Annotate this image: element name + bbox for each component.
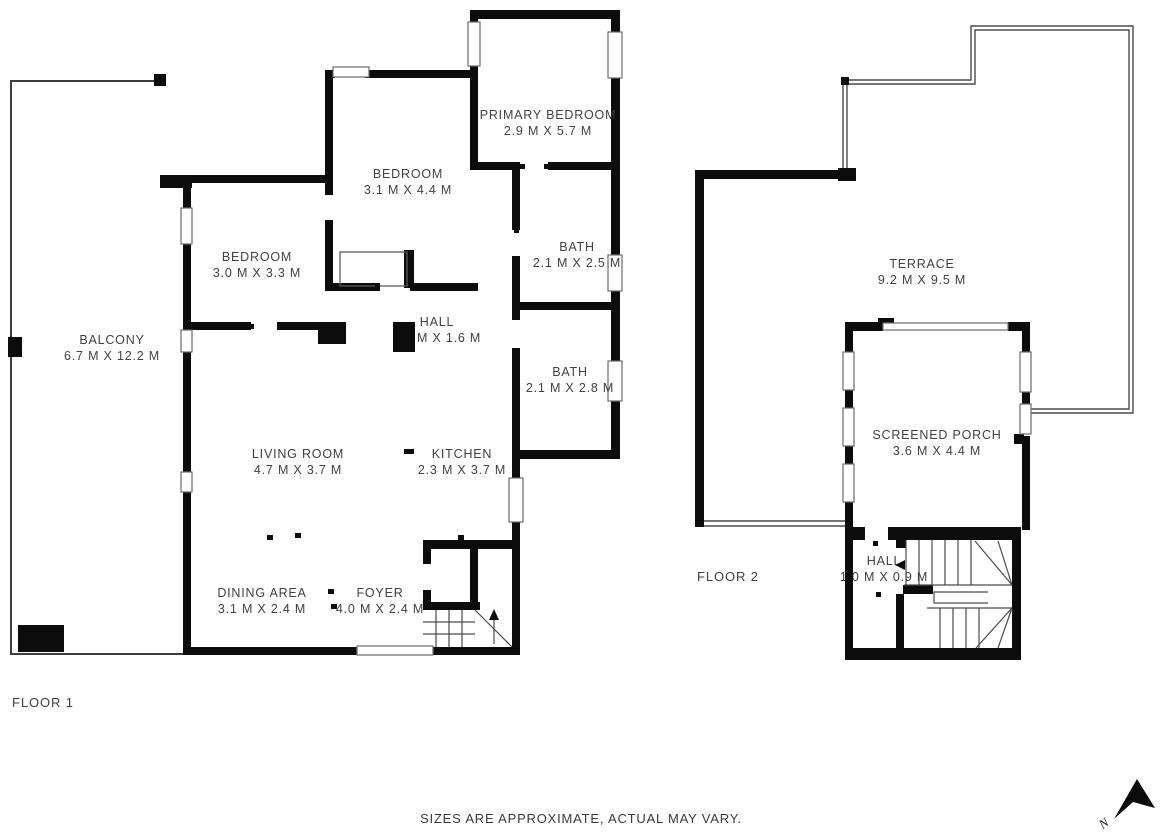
room-label-kitchen: KITCHEN 2.3 M X 3.7 M xyxy=(418,446,506,478)
room-name: KITCHEN xyxy=(418,446,506,462)
room-dims: 3.6 M X 4.4 M xyxy=(872,443,1001,459)
room-dims: 2.1 M X 2.5 M xyxy=(533,255,621,271)
room-label-terrace: TERRACE 9.2 M X 9.5 M xyxy=(878,256,966,288)
room-name: DINING AREA xyxy=(217,585,306,601)
room-dims: 9.2 M X 9.5 M xyxy=(878,272,966,288)
room-label-primary-bedroom: PRIMARY BEDROOM 2.9 M X 5.7 M xyxy=(480,107,617,139)
room-name: BEDROOM xyxy=(364,166,452,182)
room-dims: 4.7 M X 3.7 M xyxy=(252,462,344,478)
room-dims: 3.0 M X 3.3 M xyxy=(213,265,301,281)
room-dims: 6.7 M X 12.2 M xyxy=(64,348,160,364)
room-dims: 3.1 M X 4.4 M xyxy=(364,182,452,198)
room-dims: 2.1 M X 2.8 M xyxy=(526,380,614,396)
room-label-bath-2: BATH 2.1 M X 2.8 M xyxy=(526,364,614,396)
room-name: BATH xyxy=(526,364,614,380)
room-name: BEDROOM xyxy=(213,249,301,265)
floor1-tag: FLOOR 1 xyxy=(12,695,74,710)
room-label-bath-1: BATH 2.1 M X 2.5 M xyxy=(533,239,621,271)
room-name: LIVING ROOM xyxy=(252,446,344,462)
room-label-screened-porch: SCREENED PORCH 3.6 M X 4.4 M xyxy=(872,427,1001,459)
room-dims: 2.3 M X 3.7 M xyxy=(418,462,506,478)
room-label-foyer: FOYER 4.0 M X 2.4 M xyxy=(336,585,424,617)
room-name: PRIMARY BEDROOM xyxy=(480,107,617,123)
room-dims: 4.0 M X 2.4 M xyxy=(336,601,424,617)
floor2-tag: FLOOR 2 xyxy=(697,569,759,584)
floor-plan-page: { "floor1": { "label": "FLOOR 1", "rooms… xyxy=(0,0,1160,833)
room-name: BALCONY xyxy=(64,332,160,348)
room-name: FOYER xyxy=(336,585,424,601)
size-disclaimer: SIZES ARE APPROXIMATE, ACTUAL MAY VARY. xyxy=(420,811,742,826)
room-dims: 3.1 M X 2.4 M xyxy=(217,601,306,617)
room-label-balcony: BALCONY 6.7 M X 12.2 M xyxy=(64,332,160,364)
room-name: BATH xyxy=(533,239,621,255)
room-name: TERRACE xyxy=(878,256,966,272)
room-label-bedroom-1: BEDROOM 3.1 M X 4.4 M xyxy=(364,166,452,198)
room-label-dining-area: DINING AREA 3.1 M X 2.4 M xyxy=(217,585,306,617)
room-name: SCREENED PORCH xyxy=(872,427,1001,443)
room-label-living-room: LIVING ROOM 4.7 M X 3.7 M xyxy=(252,446,344,478)
labels-layer: PRIMARY BEDROOM 2.9 M X 5.7 M BEDROOM 3.… xyxy=(0,0,1160,833)
room-dims: 2.9 M X 5.7 M xyxy=(480,123,617,139)
room-label-bedroom-2: BEDROOM 3.0 M X 3.3 M xyxy=(213,249,301,281)
